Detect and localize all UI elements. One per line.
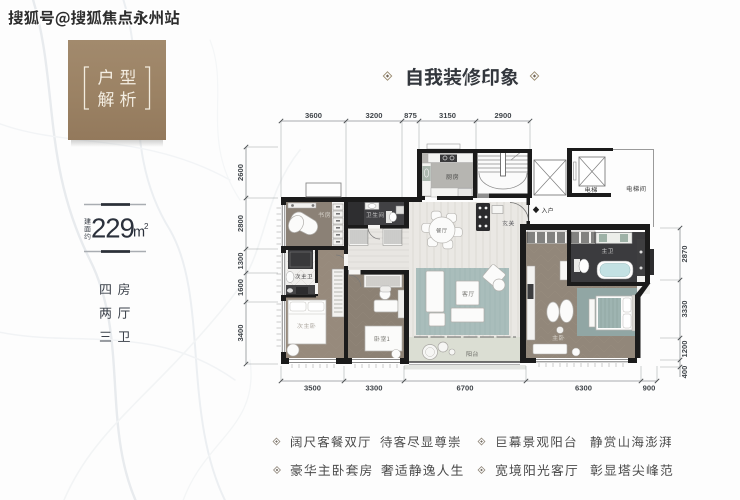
- svg-text:3600: 3600: [305, 111, 322, 120]
- svg-text:3300: 3300: [366, 384, 383, 393]
- svg-text:6700: 6700: [457, 384, 474, 393]
- svg-text:3150: 3150: [439, 111, 456, 120]
- svg-text:2800: 2800: [236, 215, 245, 232]
- svg-text:6300: 6300: [575, 384, 592, 393]
- svg-text:3200: 3200: [366, 111, 383, 120]
- svg-text:900: 900: [643, 384, 656, 393]
- svg-text:400: 400: [680, 366, 689, 379]
- svg-text:3330: 3330: [680, 301, 689, 318]
- svg-text:3400: 3400: [236, 325, 245, 342]
- svg-text:1300: 1300: [236, 253, 245, 270]
- svg-text:229: 229: [91, 213, 134, 244]
- svg-text:2900: 2900: [495, 111, 512, 120]
- svg-text:2600: 2600: [236, 164, 245, 181]
- svg-text:3500: 3500: [304, 384, 321, 393]
- svg-text:1200: 1200: [680, 341, 689, 358]
- svg-text:875: 875: [404, 111, 417, 120]
- svg-text:1600: 1600: [236, 279, 245, 296]
- svg-text:2870: 2870: [680, 246, 689, 263]
- svg-text:2: 2: [144, 222, 149, 231]
